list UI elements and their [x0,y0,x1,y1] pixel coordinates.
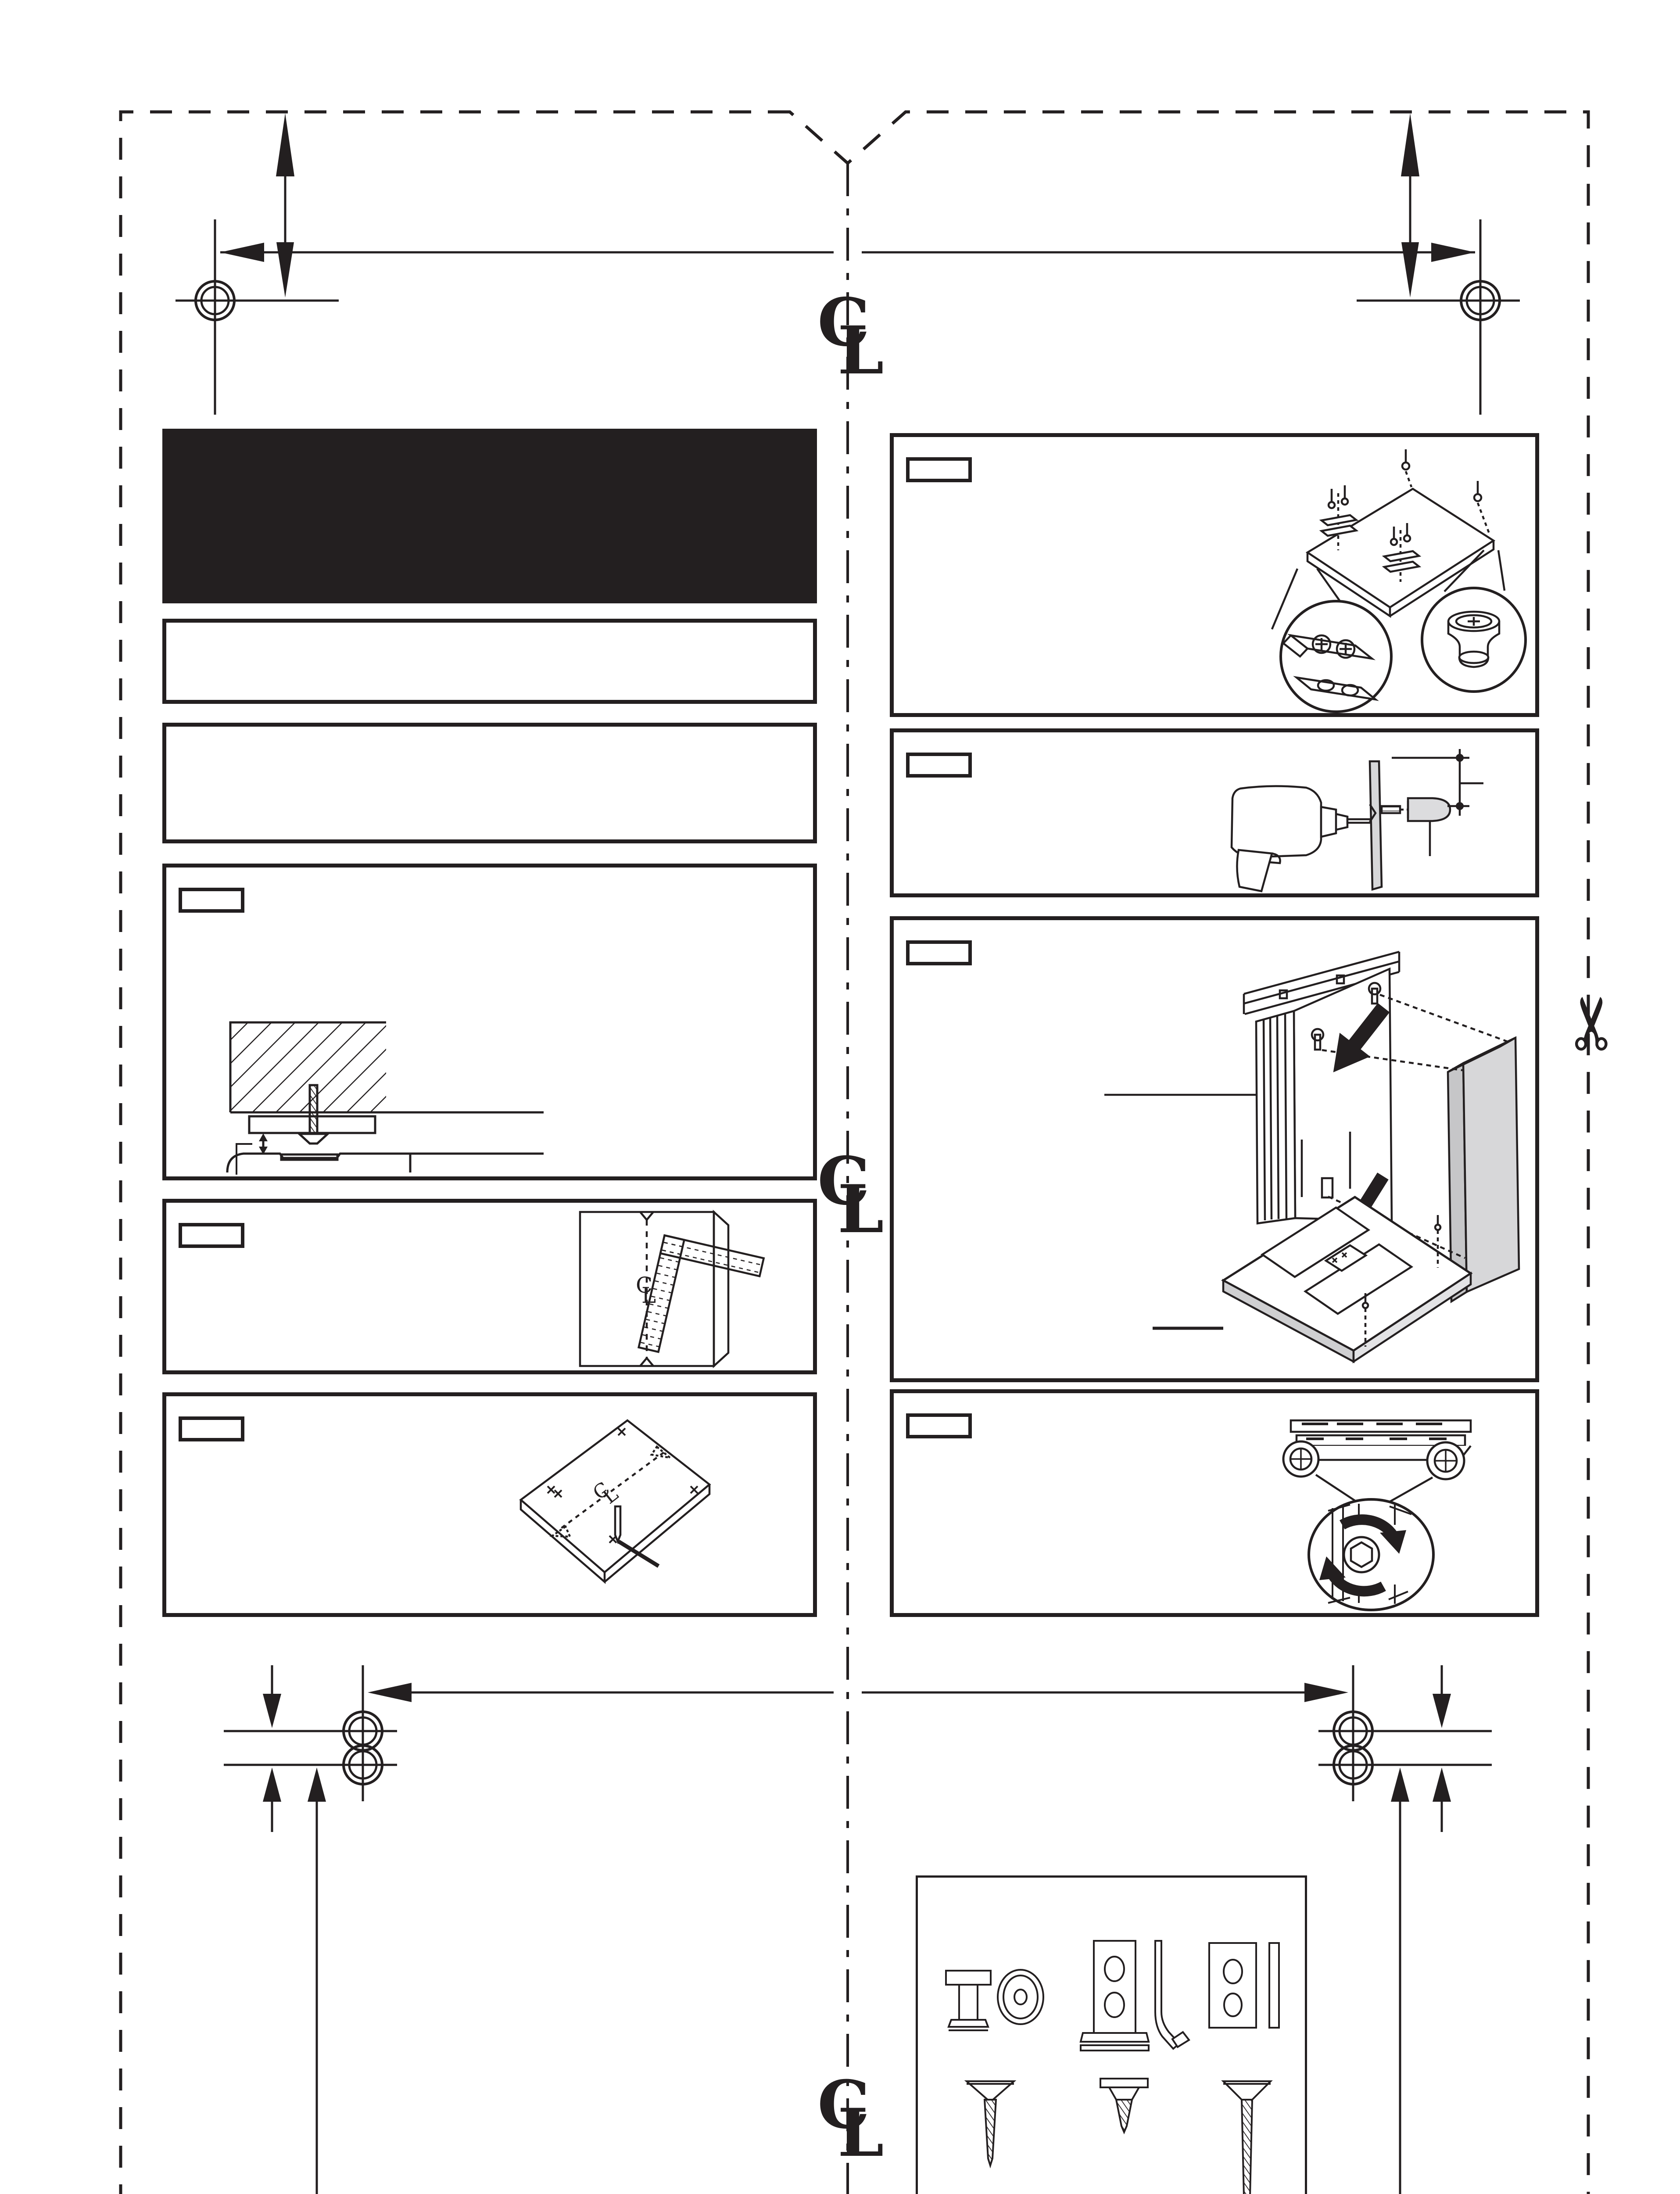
arrow-down [276,242,294,298]
step-box-adjustment [890,1389,1539,1617]
hardware-parts-box [916,1875,1307,2194]
detail-circle-bracket [1281,601,1391,712]
illustration-height-adjustment [894,1393,1535,1613]
illustration-mounting-plates [894,437,1535,713]
illustration-door-square: C L [166,1203,813,1370]
bracket-front-view [1081,1941,1149,2051]
corner-screw [1402,449,1411,487]
note-box-2 [162,723,817,843]
scissors-icon: ✂ [1553,984,1632,1063]
bracket-side-view [1155,1941,1189,2049]
step-box-panel-marking: C L [162,1392,817,1617]
step-box-wall-section [162,864,817,1180]
screw-short [1100,2079,1148,2132]
centre-line-symbol: C L [815,1148,881,1254]
screw-long [1223,2081,1271,2194]
door-panel [1370,761,1382,889]
detail-circle-stud [1422,588,1526,692]
arrow-right [1431,243,1475,262]
plate-side-view [1269,1943,1279,2028]
plate-front-view [1209,1943,1256,2028]
centre-line-l: L [838,318,884,384]
hardware-parts [918,1878,1305,2194]
washer-front-view [998,1970,1043,2024]
step-box-drill [890,728,1539,897]
title-block-black-panel [162,429,817,603]
centre-line-symbol: C L [815,290,881,395]
screw-medium [967,2081,1014,2165]
illustration-wall-batten-section [166,868,813,1176]
base-mechanism [1283,1420,1471,1479]
drill-icon [1232,786,1373,891]
illustration-hang-panel [894,920,1535,1378]
arrow-left [220,243,264,262]
step-box-hang-panel [890,916,1539,1382]
step-box-mounting-plates [890,433,1539,717]
illustration-panel-marking: C L [166,1396,813,1613]
illustration-drill-knob [894,732,1535,893]
stud-spacer-side-view [946,1971,991,2030]
centre-line-symbol: C L [815,2072,881,2177]
arrow-up [276,113,294,176]
knob [1408,798,1450,821]
installation-template-page: C L C L C L ✂ ✂ [0,0,1680,2194]
corner-screw [1474,481,1490,534]
step-box-door-centerline: C L [162,1199,817,1374]
note-box-1 [162,619,817,704]
